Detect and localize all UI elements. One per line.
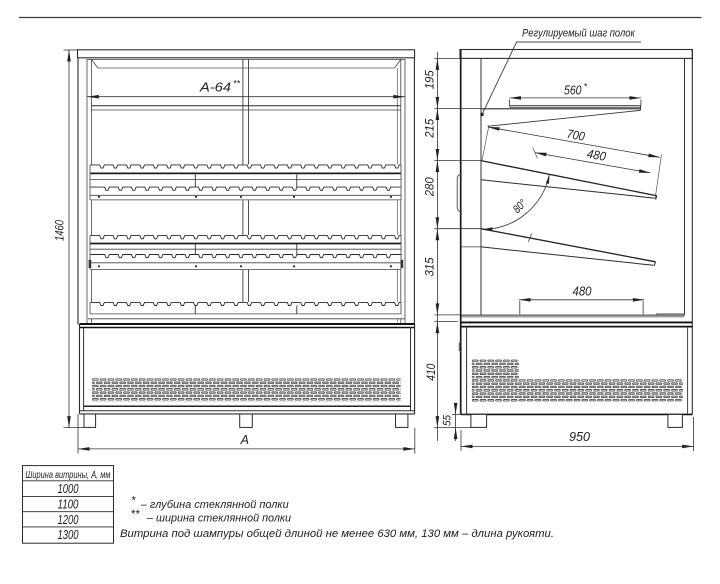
svg-text:1100: 1100 <box>58 497 80 512</box>
svg-text:1460: 1460 <box>55 220 67 241</box>
svg-text:**: ** <box>131 509 140 521</box>
svg-text:195: 195 <box>424 70 436 90</box>
svg-text:560: 560 <box>564 84 582 98</box>
svg-text:315: 315 <box>424 257 436 277</box>
svg-text:215: 215 <box>424 118 436 139</box>
svg-text:А: А <box>240 433 249 447</box>
svg-text:**: ** <box>233 79 241 89</box>
svg-text:1000: 1000 <box>58 481 80 496</box>
svg-text:– ширина стеклянной полки: – ширина стеклянной полки <box>146 512 291 524</box>
svg-text:*: * <box>584 82 588 92</box>
svg-text:410: 410 <box>426 363 438 381</box>
svg-text:– глубина стеклянной полки: – глубина стеклянной полки <box>140 499 289 511</box>
svg-text:280: 280 <box>424 177 436 198</box>
svg-text:Ширина витрины, А, мм: Ширина витрины, А, мм <box>26 470 111 481</box>
svg-text:Витрина под шампуры общей длин: Витрина под шампуры общей длиной не мене… <box>120 528 554 540</box>
svg-text:1300: 1300 <box>58 527 80 542</box>
svg-text:1200: 1200 <box>58 512 80 527</box>
svg-text:950: 950 <box>569 430 590 444</box>
svg-text:55: 55 <box>442 414 454 426</box>
svg-text:*: * <box>131 496 136 508</box>
svg-text:Регулируемый шаг полок: Регулируемый шаг полок <box>522 28 636 40</box>
svg-text:А-64: А-64 <box>199 80 231 95</box>
svg-text:480: 480 <box>573 285 592 299</box>
